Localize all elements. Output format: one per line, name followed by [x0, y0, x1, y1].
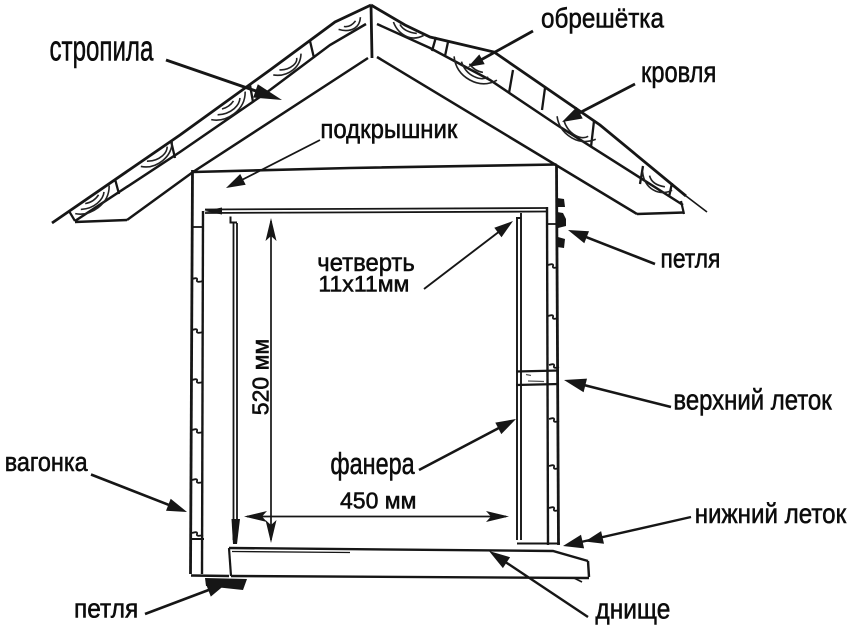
svg-text:верхний леток: верхний леток [673, 384, 832, 417]
svg-text:стропила: стропила [50, 29, 155, 69]
svg-text:днище: днище [595, 593, 670, 625]
svg-text:петля: петля [661, 245, 721, 274]
svg-text:520 мм: 520 мм [248, 339, 274, 415]
svg-text:вагонка: вагонка [5, 447, 89, 477]
svg-text:фанера: фанера [330, 446, 415, 481]
svg-text:обрешётка: обрешётка [541, 2, 664, 34]
svg-text:петля: петля [74, 594, 138, 623]
svg-text:подкрышник: подкрышник [320, 115, 458, 145]
svg-text:11х11мм: 11х11мм [318, 272, 409, 296]
svg-text:450 мм: 450 мм [340, 487, 416, 513]
svg-text:нижний леток: нижний леток [695, 498, 847, 530]
svg-text:кровля: кровля [641, 55, 716, 88]
